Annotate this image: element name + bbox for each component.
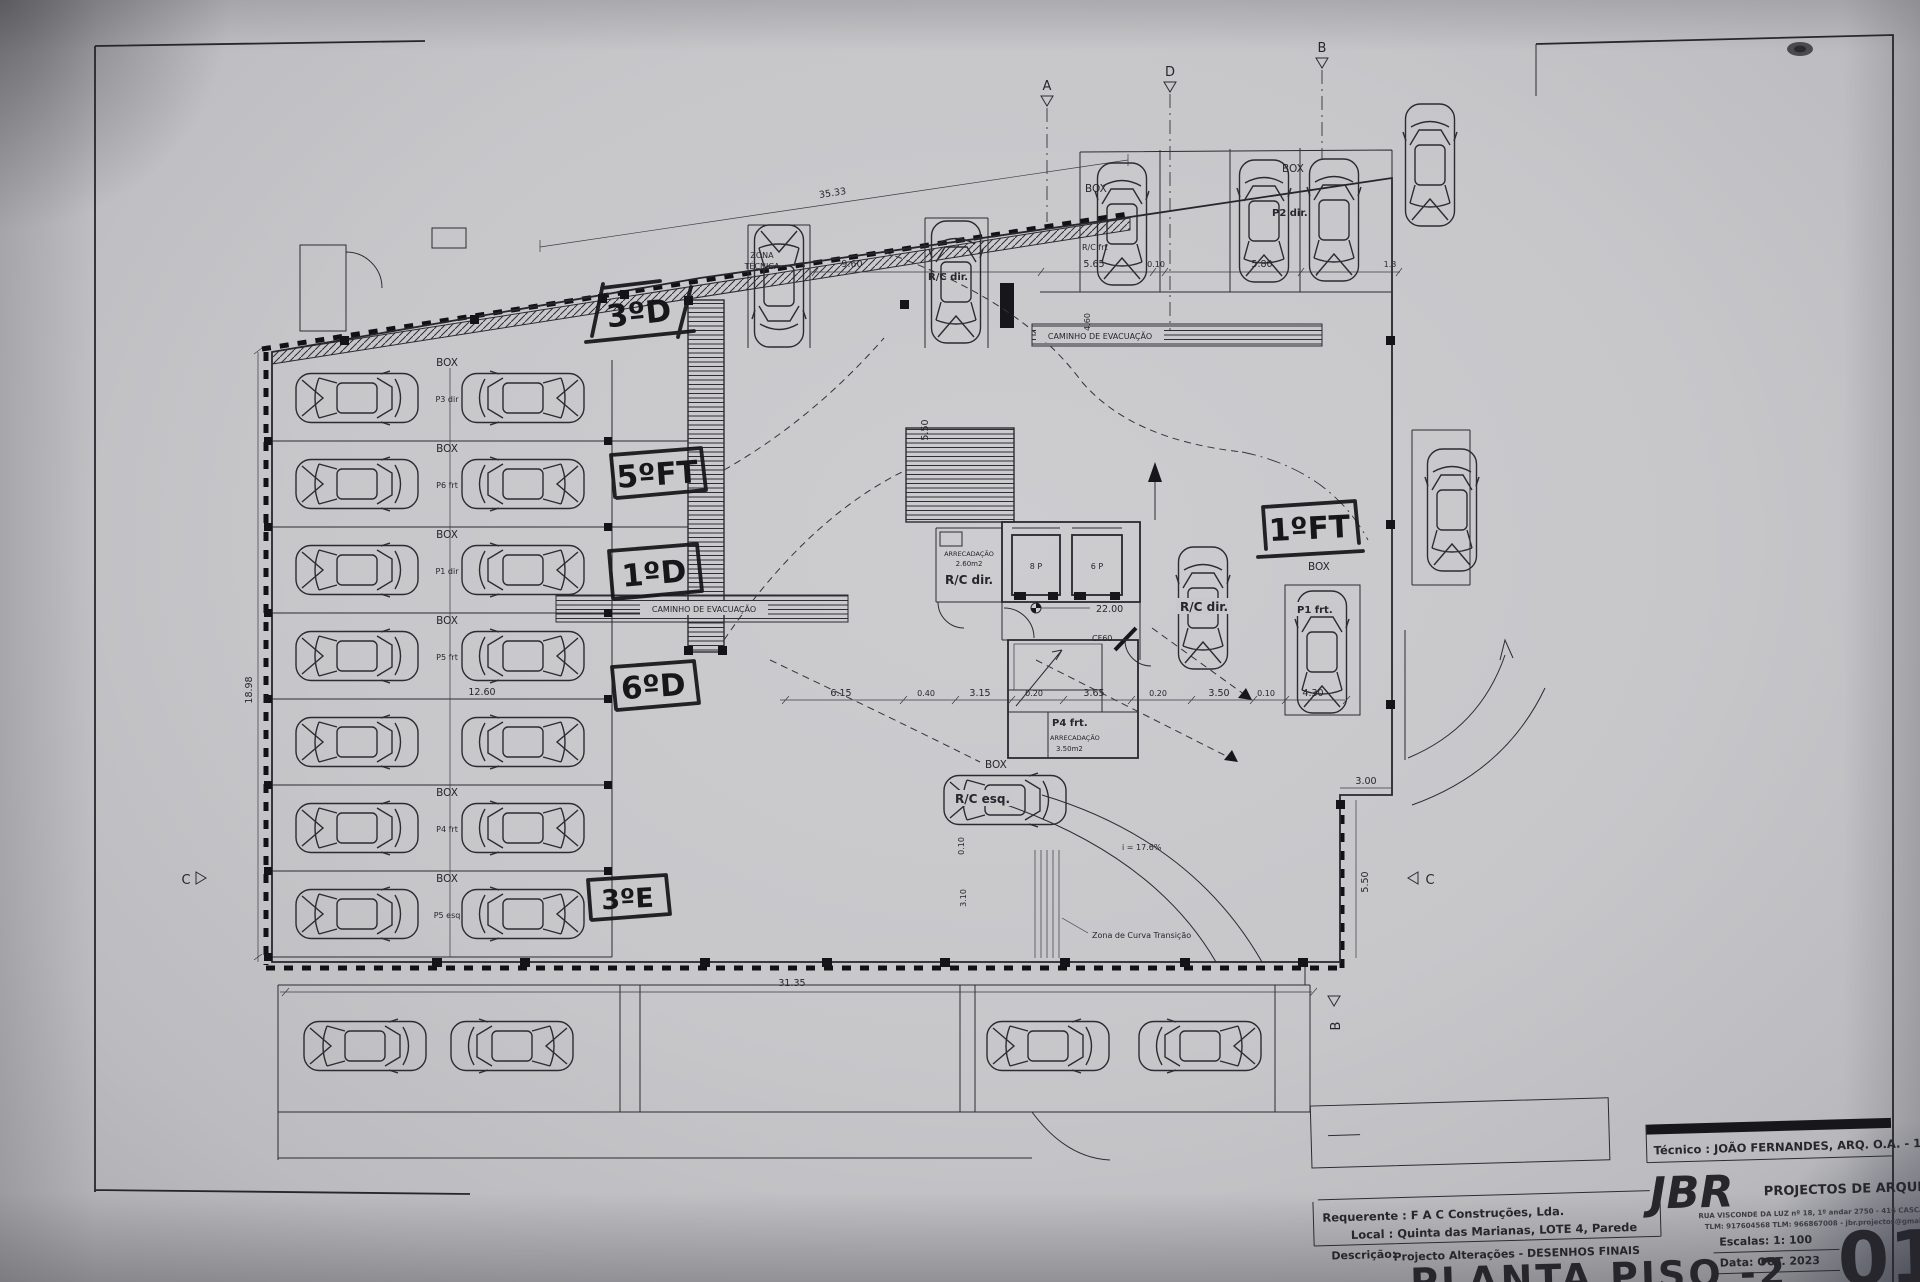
handwritten-6d: 6ºD [612, 661, 699, 710]
p4-frt-label: P4 frt. [1052, 718, 1088, 729]
dim: 3.65 [1083, 688, 1104, 699]
plan-drawing: BOX P3 dir BOX P6 frt BOX P1 dir BOX P5 … [0, 0, 1920, 1282]
dim: 0.20 [1025, 689, 1043, 698]
dim: 3.50 [1208, 688, 1229, 699]
tecnico-line: Técnico : JOÃO FERNANDES, ARQ. O.A. - 11… [1653, 1134, 1920, 1157]
p2-dir-label: P2 dir. [1272, 208, 1308, 219]
car-top-view [1403, 104, 1457, 226]
car-top-view [462, 887, 584, 941]
stall-p-label: P5 frt [436, 653, 458, 662]
dim: 3.00 [1355, 776, 1376, 787]
title-block-bar [1646, 1118, 1891, 1135]
dim: 0.10 [957, 837, 966, 855]
rc-dir-label: R/C dir. [928, 272, 968, 283]
svg-text:P1 frt.: P1 frt. [1297, 605, 1333, 616]
p1-frt-stall-label: P1 frt. [1294, 602, 1342, 616]
rc-dir-stall-label: R/C dir. [1176, 598, 1232, 614]
dim-top: 35.33 [818, 186, 847, 201]
dim: 6.15 [830, 688, 851, 699]
stall-p-label: P1 dir [435, 567, 459, 576]
section-marker-b: B [1318, 41, 1327, 56]
box-label: BOX [985, 759, 1007, 771]
zona-tecnica-label: ZONA [750, 251, 774, 260]
section-marker-c: C [181, 873, 190, 888]
svg-text:R/C dir.: R/C dir. [1180, 600, 1228, 614]
escala-value: Escalas: 1: 100 [1719, 1233, 1812, 1249]
dim-left-height: 18.98 [244, 676, 255, 703]
structural-columns [264, 290, 1395, 967]
arrecadacao-area: 3.50m2 [1056, 745, 1083, 753]
arrecadacao-label: ARRECADAÇÃO [1050, 733, 1100, 742]
svg-text:3ºD: 3ºD [605, 293, 673, 336]
stall-p-label: P5 esq [434, 911, 461, 920]
curva-transicao-label: Zona de Curva Transição [1092, 931, 1191, 940]
car-top-view [296, 801, 418, 855]
car-top-view [1139, 1019, 1261, 1073]
svg-text:CAMINHO DE EVACUAÇÃO: CAMINHO DE EVACUAÇÃO [1048, 331, 1152, 341]
dim: 5.65 [1083, 259, 1104, 270]
car-top-view [1307, 159, 1361, 281]
dim: 4.30 [1302, 688, 1323, 699]
dim: 0.20 [1149, 689, 1167, 698]
box-label: BOX [1282, 163, 1304, 175]
stall-box-label: BOX [436, 787, 458, 799]
car-top-view [304, 1019, 426, 1073]
firm-name: PROJECTOS DE ARQUITECTURA [1764, 1178, 1920, 1199]
car-top-view [296, 715, 418, 769]
requerente-line: Requerente : F A C Construções, Lda. [1322, 1204, 1564, 1225]
handwritten-1ft: 1ºFT [1258, 501, 1363, 557]
plan-labels: BOX P3 dir BOX P6 frt BOX P1 dir BOX P5 … [434, 163, 1342, 940]
section-marker-a: A [1043, 79, 1052, 94]
car-top-view [462, 715, 584, 769]
car-top-view [462, 457, 584, 511]
svg-text:CAMINHO DE EVACUAÇÃO: CAMINHO DE EVACUAÇÃO [652, 604, 756, 614]
car-top-view [451, 1019, 573, 1073]
handwritten-5ft: 5ºFT [611, 448, 706, 498]
car-top-view [296, 371, 418, 425]
title-block: Técnico : JOÃO FERNANDES, ARQ. O.A. - 11… [1310, 1087, 1920, 1282]
car-top-view [296, 457, 418, 511]
dim: 0.40 [917, 689, 935, 698]
lift-8p-label: 8 P [1030, 562, 1043, 571]
rc-frt-label: R/C frt [1082, 243, 1108, 252]
car-top-view [1425, 449, 1479, 571]
sheet-frame [95, 35, 1893, 1282]
stall-box-label: BOX [436, 443, 458, 455]
arrecadacao-label: ARRECADAÇÃO [944, 549, 994, 558]
rc-dir-room-label: R/C dir. [945, 573, 993, 587]
descricao-label: Descrição: [1331, 1248, 1396, 1263]
dim: 3.10 [959, 889, 968, 907]
stall-box-label: BOX [436, 873, 458, 885]
handwritten-3e: 3ºE [588, 875, 670, 920]
dim: 0.10 [1147, 260, 1165, 269]
ramp-slope-label: i = 17.6% [1122, 843, 1162, 852]
dim-bottom: 31.35 [778, 978, 805, 989]
section-marker-b: B [1329, 1022, 1344, 1031]
arrecadacao-area: 2.60m2 [956, 560, 983, 568]
car-top-view [462, 801, 584, 855]
level-marker [1031, 603, 1090, 613]
car-top-view [296, 887, 418, 941]
section-markers: A D B C C B [181, 41, 1434, 1030]
dim: 12.60 [468, 687, 495, 698]
dim: 9.60 [841, 259, 862, 270]
caminho-evacuacao-label: CAMINHO DE EVACUAÇÃO [640, 601, 768, 615]
dim: 5.50 [920, 419, 931, 440]
stall-p-label: P4 frt [436, 825, 458, 834]
dim: 0.10 [1257, 689, 1275, 698]
caminho-evacuacao-label: CAMINHO DE EVACUAÇÃO [1036, 328, 1164, 342]
stall-p-label: P6 frt [436, 481, 458, 490]
car-top-view [462, 543, 584, 597]
level-value: 22.00 [1096, 604, 1123, 615]
section-marker-c: C [1425, 873, 1434, 888]
dim: 4.60 [1083, 313, 1092, 331]
car-top-view [462, 629, 584, 683]
car-top-view [296, 543, 418, 597]
svg-text:6ºD: 6ºD [620, 667, 687, 707]
svg-text:1ºFT: 1ºFT [1268, 509, 1351, 549]
rc-esq-stall-label: R/C esq. [952, 790, 1012, 806]
photographed-floor-plan-sheet: BOX P3 dir BOX P6 frt BOX P1 dir BOX P5 … [0, 0, 1920, 1282]
zona-tecnica-label: TÉCNICA [744, 260, 780, 271]
stall-box-label: BOX [436, 357, 458, 369]
svg-text:3ºE: 3ºE [601, 883, 655, 917]
car-top-view [296, 629, 418, 683]
lift-6p-label: 6 P [1091, 562, 1104, 571]
car-top-view [462, 371, 584, 425]
svg-text:5ºFT: 5ºFT [615, 454, 699, 496]
dim: 3.15 [969, 688, 990, 699]
stall-box-label: BOX [436, 615, 458, 627]
local-line: Local : Quinta das Marianas, LOTE 4, Par… [1351, 1220, 1638, 1242]
dim: 1.3 [1384, 260, 1397, 269]
box-label: BOX [1085, 183, 1107, 195]
box-label: BOX [1308, 561, 1330, 573]
svg-text:1ºD: 1ºD [620, 553, 688, 595]
stall-box-label: BOX [436, 529, 458, 541]
svg-text:R/C esq.: R/C esq. [955, 792, 1010, 806]
section-marker-d: D [1165, 65, 1175, 80]
cf60-label: CF60 [1092, 634, 1112, 643]
stall-p-label: P3 dir [435, 395, 459, 404]
dim: 5.50 [1360, 871, 1371, 892]
dim: 5.80 [1251, 259, 1272, 270]
car-top-view [987, 1019, 1109, 1073]
sheet-number: 01 [1837, 1215, 1920, 1282]
